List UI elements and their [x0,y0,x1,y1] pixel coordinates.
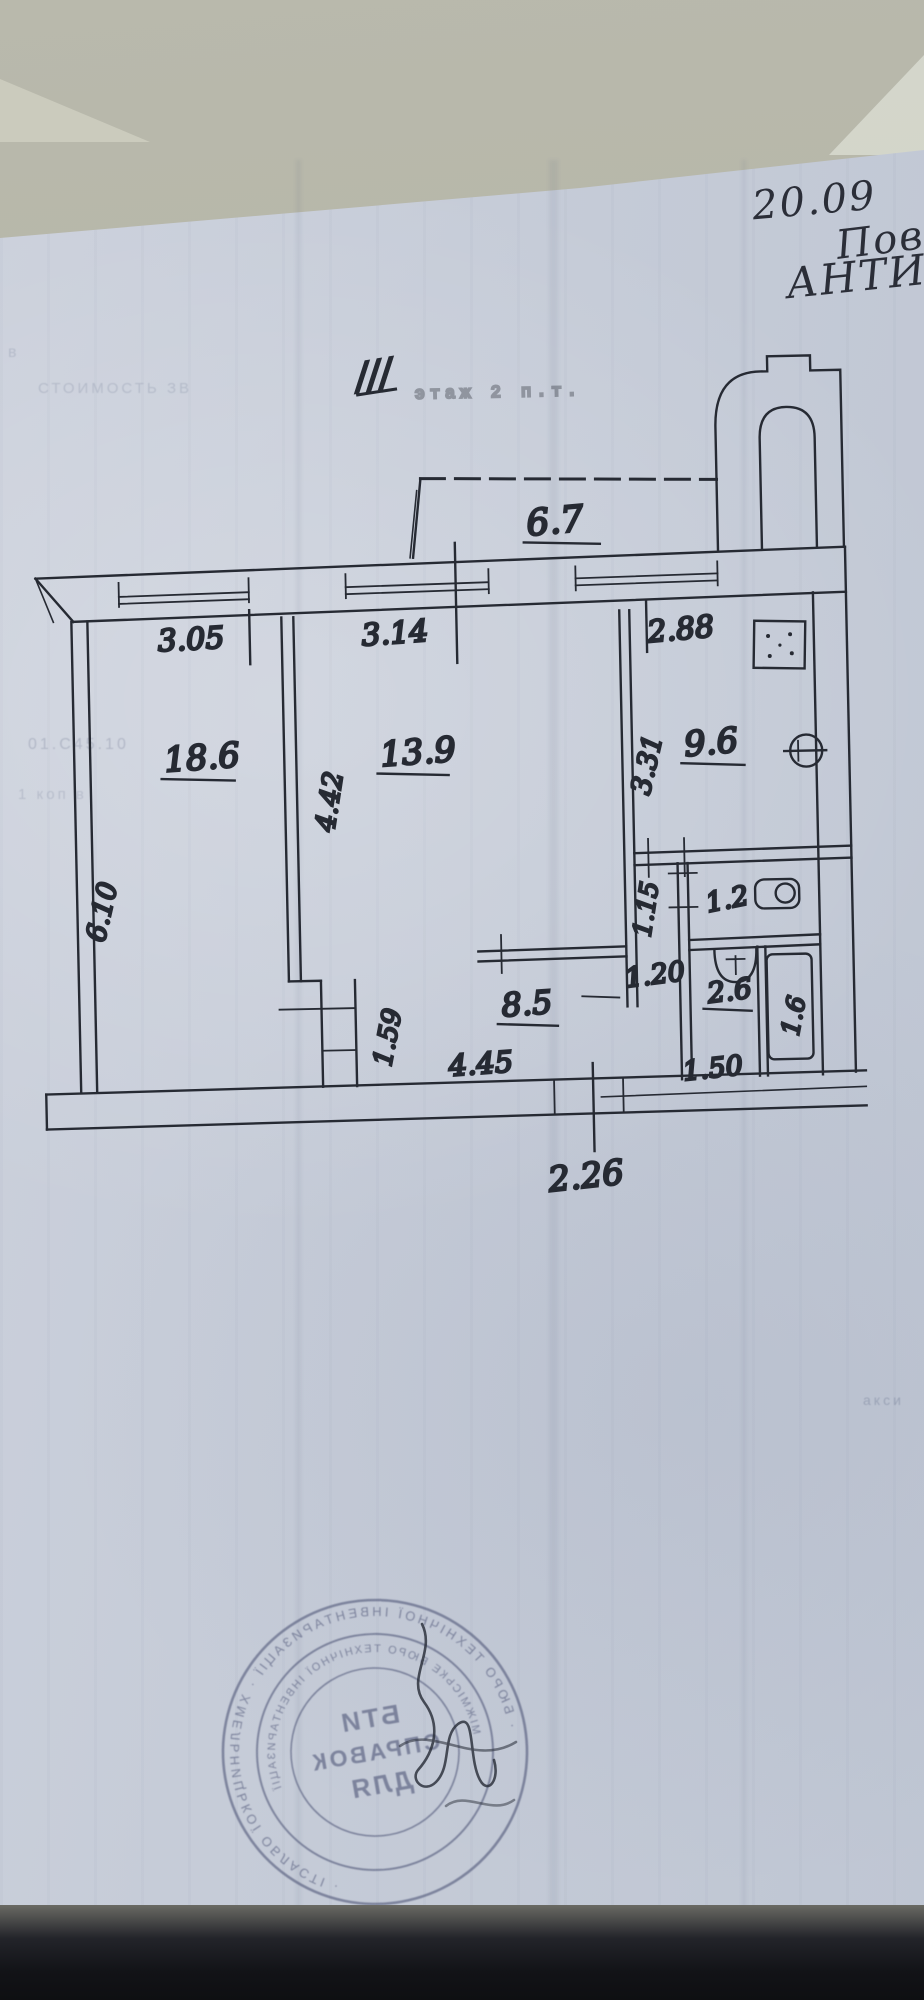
dim-tick [249,610,250,664]
storey-mark: /// [350,351,400,399]
room-area-label-bathroom: 2.6 [703,971,754,1011]
svg-text:1.20: 1.20 [623,956,687,994]
photo-of-floor-plan-document: в СТОИМОСТЬ ЗВ 01.С45.10 1 коп в акси 20… [0,0,924,2000]
second-sheet-corner [829,55,924,155]
top-wall [35,547,846,623]
bleed-text: акси [863,1392,904,1408]
room-area-label-left: 18.6 [161,735,242,782]
toilet-icon [755,879,800,909]
svg-text:9.6: 9.6 [682,720,739,765]
room-middle-bottom-wall [478,932,627,973]
dim-hallway-width: 4.45 [446,1044,514,1083]
dim-left-wall: 6.10 [81,879,125,944]
duct-structure [714,355,844,550]
floor-plan-svg: /// этаж 2 п.т. 6.7 [26,329,885,1256]
svg-text:2.6: 2.6 [704,972,753,1010]
photo-dark-edge [0,1905,924,2000]
svg-text:6.7: 6.7 [525,499,586,545]
right-wall [812,547,856,1075]
bleed-text: в [8,344,20,362]
vent-grid-icon [754,621,806,669]
svg-text:18.6: 18.6 [163,735,241,780]
dim-top-middle: 3.14 [360,614,429,654]
dim-corridor-width: 1.15 [627,879,664,938]
dim-middle-wall: 4.42 [310,769,350,834]
dim-corridor-depth: 1.20 [582,956,688,998]
bath-inner-label: 1.6 [776,993,812,1038]
bottom-exit-dimension: 2.26 [543,1062,626,1200]
svg-text:13.9: 13.9 [379,730,457,775]
floor-plan: /// этаж 2 п.т. 6.7 [26,329,885,1256]
table-light-wedge [0,52,150,142]
svg-text:8.5: 8.5 [500,983,554,1025]
stove-icon [784,734,827,767]
dim-top-right: 2.88 [645,609,716,650]
dim-bathroom-width: 1.50 [681,1050,744,1087]
balcony-area-label: 6.7 [523,498,600,545]
dim-hall-inner: 1.59 [368,1006,408,1068]
left-wall [71,622,97,1092]
storey-stamp-text: этаж 2 п.т. [414,382,582,404]
svg-text:2.26: 2.26 [545,1152,626,1200]
dim-top-left: 3.05 [157,621,226,660]
room-area-label-kitchen: 9.6 [681,720,745,766]
room-area-label-wc: 1.2 [703,880,751,919]
partition-left [271,616,357,1087]
room-area-label-middle: 13.9 [377,730,458,777]
signature [388,1618,548,1848]
room-area-label-hallway: 8.5 [497,983,558,1027]
